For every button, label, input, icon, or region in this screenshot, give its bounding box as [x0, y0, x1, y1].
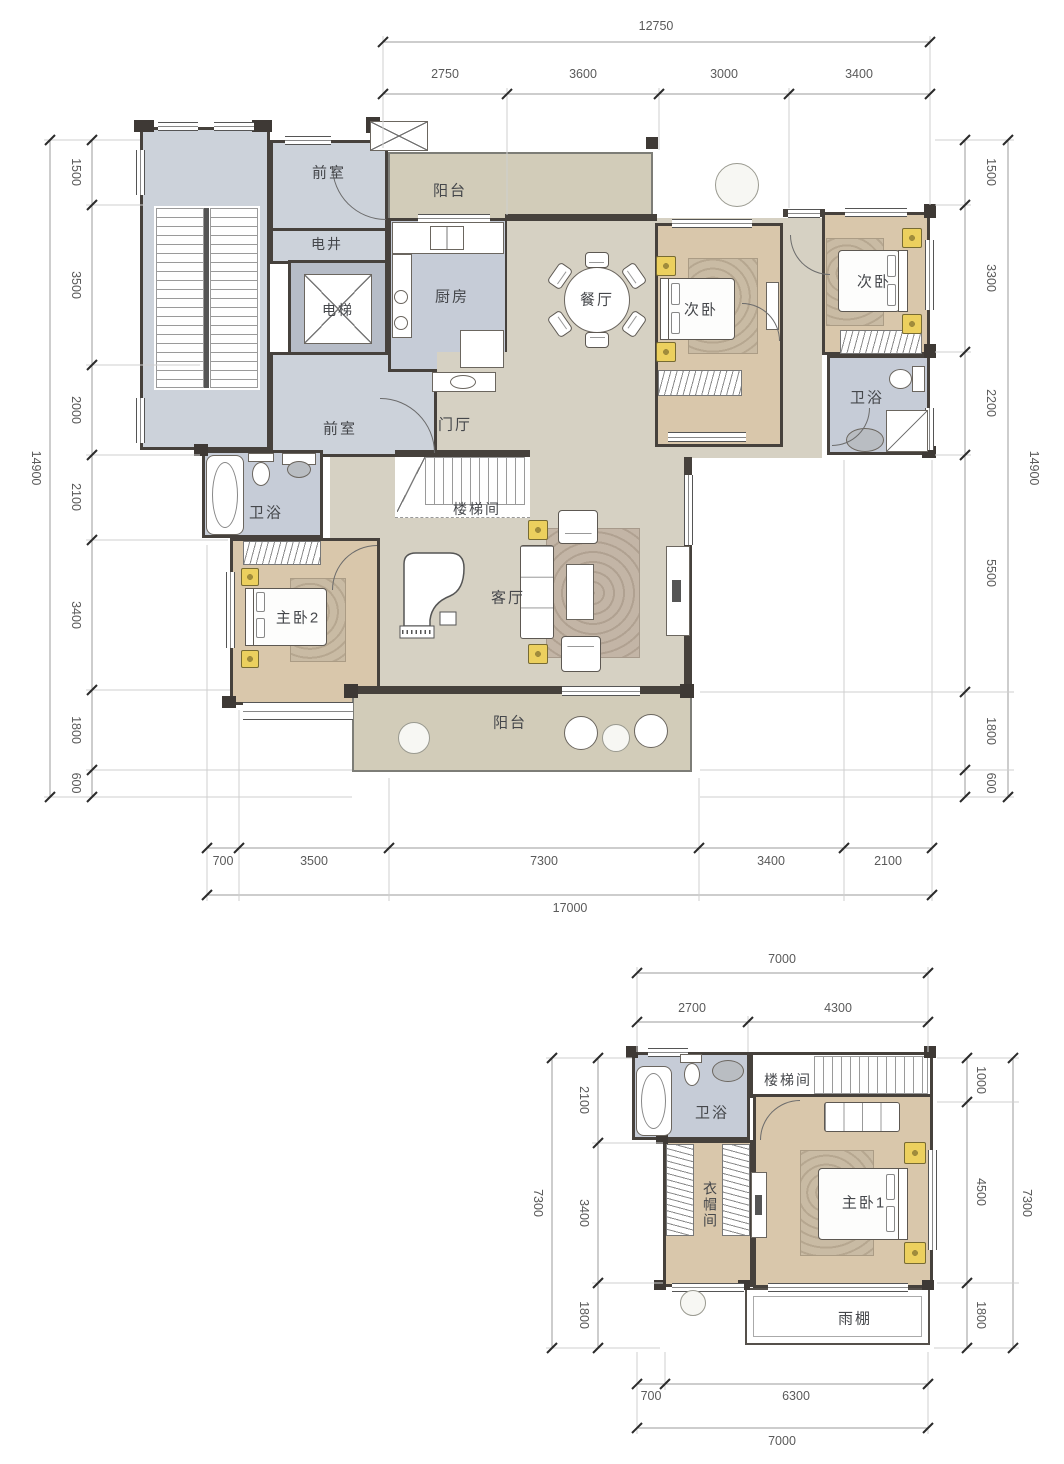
wall-pier	[646, 137, 658, 149]
dim-p2-right-1: 4500	[974, 1178, 988, 1206]
dim-p1-left-4: 3400	[69, 601, 83, 629]
toilet-symbol	[889, 369, 912, 389]
dim-p2-left-0: 2100	[577, 1086, 591, 1114]
dim-p2-top-1: 4300	[824, 1001, 852, 1015]
wardrobe-symbol	[243, 541, 321, 565]
sink-symbol	[287, 461, 311, 478]
stove-burner-symbol	[394, 316, 408, 330]
wall-pier	[680, 684, 694, 698]
window	[672, 219, 752, 228]
dim-p2-right-total: 7300	[1020, 1189, 1034, 1217]
dim-p1-right-2: 2200	[984, 389, 998, 417]
stair-flight	[425, 457, 525, 505]
armchair-symbol	[558, 510, 598, 544]
wall-pier	[654, 1280, 666, 1290]
plant-icon	[680, 1290, 706, 1316]
piano-symbol	[398, 550, 470, 642]
pillow	[256, 618, 265, 638]
window	[788, 209, 820, 218]
room-label-stairwell-1: 楼梯间	[453, 499, 501, 519]
stove-burner-symbol	[394, 290, 408, 304]
kitchen-sink-symbol	[430, 226, 464, 250]
headboard	[660, 278, 669, 340]
nightstand-symbol	[904, 1142, 926, 1164]
dim-p1-right-1: 3300	[984, 264, 998, 292]
wall-pier	[626, 1046, 638, 1058]
dim-p2-right-0: 1000	[974, 1066, 988, 1094]
dim-p1-left-3: 2100	[69, 483, 83, 511]
window	[226, 572, 235, 648]
plant-icon	[715, 163, 759, 207]
wall-pier	[922, 1280, 934, 1290]
dim-p2-left-2: 1800	[577, 1301, 591, 1329]
stair-flight	[156, 208, 204, 388]
wall-pier	[222, 696, 236, 708]
wardrobe-symbol	[658, 370, 742, 396]
armchair-symbol	[561, 636, 601, 672]
dim-p2-top-total: 7000	[768, 952, 796, 966]
dim-p1-bottom-2: 7300	[530, 854, 558, 868]
floorplan-canvas: 前室 电井 电梯 前室 阳台 厨房 餐厅 次卧 次卧 卫浴 门厅 卫浴 楼梯间 …	[0, 0, 1064, 1464]
room-label-bath-2: 卫浴	[695, 1102, 729, 1123]
nightstand-symbol	[902, 314, 922, 334]
dim-p2-left-total: 7300	[531, 1189, 545, 1217]
window	[925, 240, 934, 310]
dim-p1-top-1: 3600	[569, 67, 597, 81]
chair-symbol	[585, 332, 609, 348]
dim-p1-left-0: 1500	[69, 158, 83, 186]
room-balcony-top	[388, 152, 653, 220]
headboard	[898, 1168, 908, 1240]
window	[158, 122, 198, 131]
toilet-symbol	[680, 1054, 702, 1063]
window	[768, 1283, 908, 1292]
sink-symbol	[712, 1060, 744, 1082]
headboard	[245, 588, 254, 646]
window	[136, 398, 145, 443]
dim-p2-right-2: 1800	[974, 1301, 988, 1329]
nightstand-symbol	[656, 256, 676, 276]
pillow	[256, 592, 265, 612]
sliding-door	[562, 686, 640, 696]
bay-window	[243, 702, 353, 720]
room-label-dining: 餐厅	[580, 289, 614, 310]
wall-pier	[252, 120, 272, 132]
pillow	[671, 283, 680, 305]
dim-p1-right-0: 1500	[984, 158, 998, 186]
fridge-symbol	[460, 330, 504, 368]
wall-segment	[348, 686, 694, 694]
dim-p1-bottom-4: 2100	[874, 854, 902, 868]
dim-p2-bottom-1: 6300	[782, 1389, 810, 1403]
dim-p2-bottom-total: 7000	[768, 1434, 796, 1448]
nightstand-symbol	[904, 1242, 926, 1264]
tv-symbol	[755, 1195, 762, 1215]
room-label-bath-left: 卫浴	[249, 502, 283, 523]
window	[285, 136, 331, 145]
room-label-elevator: 电梯	[322, 300, 354, 320]
dim-p1-bottom-1: 3500	[300, 854, 328, 868]
window	[668, 432, 746, 442]
headboard	[898, 250, 908, 312]
window	[684, 475, 693, 545]
sofa-symbol	[824, 1102, 900, 1132]
tub-basin	[212, 462, 238, 528]
nightstand-symbol	[656, 342, 676, 362]
plant-icon	[602, 724, 630, 752]
window	[845, 208, 907, 217]
window	[672, 1283, 744, 1292]
stair-flight	[814, 1056, 928, 1094]
stair-divider	[204, 208, 209, 388]
sofa-symbol	[520, 545, 554, 639]
room-label-living: 客厅	[491, 587, 525, 608]
plant-icon	[398, 722, 430, 754]
dim-p1-right-4: 1800	[984, 717, 998, 745]
pillow	[886, 1206, 895, 1232]
dim-p1-right-3: 5500	[984, 559, 998, 587]
tub-basin	[641, 1073, 666, 1129]
room-label-balcony-top: 阳台	[433, 180, 467, 201]
wardrobe-symbol	[722, 1144, 750, 1236]
stair-flight	[210, 208, 258, 388]
dim-p1-top-2: 3000	[710, 67, 738, 81]
coffee-table-symbol	[566, 564, 594, 620]
dim-p1-left-5: 1800	[69, 716, 83, 744]
side-table-symbol	[528, 520, 548, 540]
pillow	[886, 1174, 895, 1200]
dim-p1-top-total: 12750	[639, 19, 674, 33]
room-label-canopy: 雨棚	[838, 1308, 872, 1329]
room-label-foyer: 门厅	[438, 414, 472, 435]
room-label-front-bottom: 前室	[323, 418, 357, 439]
dim-p1-top-3: 3400	[845, 67, 873, 81]
dim-p1-bottom-3: 3400	[757, 854, 785, 868]
dim-p2-top-0: 2700	[678, 1001, 706, 1015]
wall-pier	[344, 684, 358, 698]
dim-p1-bottom-total: 17000	[553, 901, 588, 915]
nightstand-symbol	[241, 650, 259, 668]
dim-p1-bottom-0: 700	[213, 854, 234, 868]
stair-break-line	[397, 457, 425, 512]
lounge-chair-symbol	[634, 714, 668, 748]
wall-segment	[505, 214, 657, 221]
vent-shaft-symbol	[370, 121, 428, 151]
dim-p1-left-6: 600	[69, 773, 83, 794]
dim-p1-top-0: 2750	[431, 67, 459, 81]
wall-pier	[924, 1046, 936, 1058]
dim-p1-left-total: 14900	[29, 451, 43, 486]
room-label-balcony-bottom: 阳台	[493, 712, 527, 733]
pillow	[671, 312, 680, 334]
toilet-symbol	[252, 462, 270, 486]
room-label-front-top: 前室	[312, 162, 346, 183]
room-label-bath-right: 卫浴	[850, 387, 884, 408]
nightstand-symbol	[241, 568, 259, 586]
dim-p2-bottom-0: 700	[641, 1389, 662, 1403]
room-label-master2: 主卧2	[276, 607, 320, 628]
toilet-symbol	[684, 1063, 700, 1086]
dim-p1-right-total: 14900	[1027, 451, 1041, 486]
room-label-master1: 主卧1	[842, 1192, 886, 1213]
toilet-symbol	[248, 453, 274, 462]
room-label-bedroom-b: 次卧	[857, 271, 891, 292]
dim-p1-left-2: 2000	[69, 396, 83, 424]
tv-symbol	[672, 580, 681, 602]
shower-symbol	[886, 410, 928, 452]
wall-pier	[194, 444, 208, 456]
nightstand-symbol	[902, 228, 922, 248]
room-label-closet: 衣帽间	[700, 1181, 720, 1229]
window	[214, 122, 254, 131]
lounge-chair-symbol	[564, 716, 598, 750]
room-label-bedroom-a: 次卧	[684, 299, 718, 320]
chair-symbol	[585, 252, 609, 268]
room-label-elec-shaft: 电井	[311, 234, 343, 254]
wall-pier	[924, 344, 936, 358]
toilet-symbol	[912, 366, 925, 392]
room-label-kitchen: 厨房	[435, 286, 469, 307]
wall-pier	[924, 204, 936, 218]
side-table-symbol	[528, 644, 548, 664]
decor-bowl-symbol	[450, 375, 476, 389]
dim-p1-right-5: 600	[984, 773, 998, 794]
room-label-stairwell-2: 楼梯间	[764, 1070, 812, 1090]
window	[136, 150, 145, 195]
window	[928, 1150, 937, 1250]
dim-p1-left-1: 3500	[69, 271, 83, 299]
dim-p2-left-1: 3400	[577, 1199, 591, 1227]
wardrobe-symbol	[666, 1144, 694, 1236]
wall-pier	[134, 120, 154, 132]
